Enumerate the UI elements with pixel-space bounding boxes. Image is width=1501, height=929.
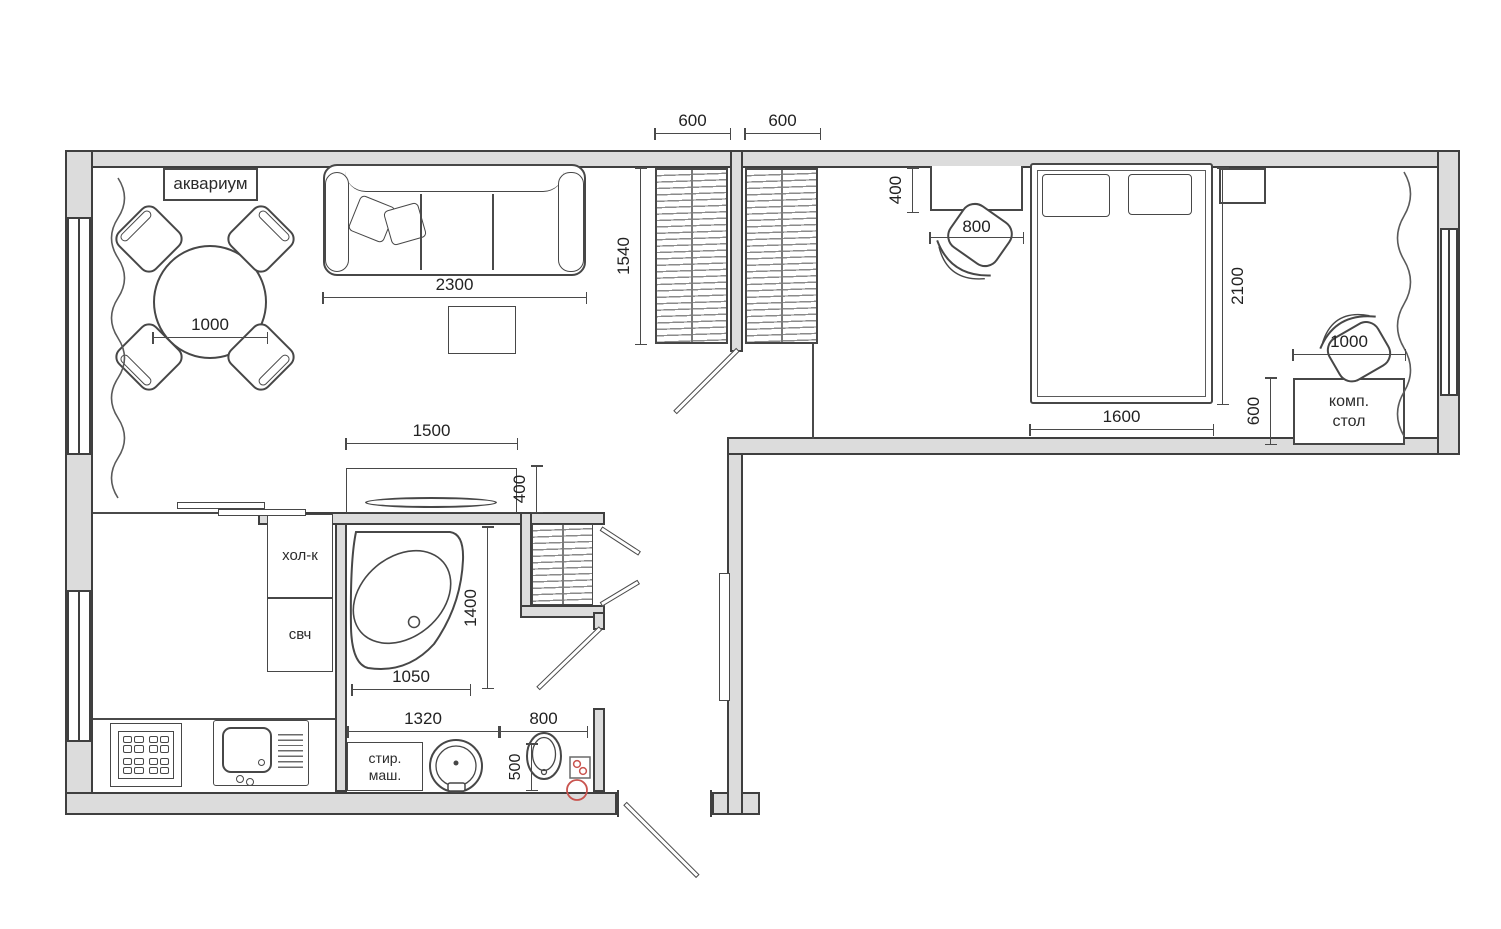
aquarium-label: аквариум xyxy=(173,174,247,194)
wardrobe-rail xyxy=(781,170,784,342)
dim-label: 1320 xyxy=(404,709,442,729)
washing-machine: стир. маш. xyxy=(347,742,423,791)
dim-label: 1400 xyxy=(461,589,481,627)
dim-label: 400 xyxy=(510,475,530,503)
sink-tap-icon xyxy=(236,775,244,783)
hall-mirror xyxy=(719,573,730,701)
dim-label: 2100 xyxy=(1228,267,1248,305)
sofa-cushion-line xyxy=(420,194,422,270)
hall-closet xyxy=(532,524,593,605)
wall-closet-left xyxy=(520,512,532,618)
washer-label-2: маш. xyxy=(369,767,402,783)
pillow xyxy=(1042,174,1110,217)
toilet-icon xyxy=(527,733,561,779)
washer-label-1: стир. xyxy=(369,750,402,766)
chair-back xyxy=(257,353,292,388)
aquarium: аквариум xyxy=(163,168,258,201)
dim-label: 600 xyxy=(1244,397,1264,425)
sink-faucet-dot xyxy=(258,759,265,766)
floor-plan: аквариум комп. ст xyxy=(0,0,1501,929)
coffee-table xyxy=(448,306,516,354)
stove-burners-icon xyxy=(118,731,174,779)
sink-drainer-icon xyxy=(278,730,303,772)
tv-console xyxy=(346,468,517,513)
microwave: свч xyxy=(267,598,333,672)
sliding-panel-2 xyxy=(218,509,306,516)
dim-label: 600 xyxy=(768,111,796,131)
washing-machine-label: стир. маш. xyxy=(369,750,402,784)
window-kitchen xyxy=(67,590,91,742)
dim-label: 2300 xyxy=(436,275,474,295)
window-living-room xyxy=(67,217,91,455)
sofa-armrest-right xyxy=(558,172,584,272)
fridge: хол-к xyxy=(267,514,333,598)
wardrobe-right xyxy=(745,168,818,344)
wardrobe-rail xyxy=(691,170,694,342)
sliding-panel-1 xyxy=(177,502,265,509)
dim-label: 500 xyxy=(507,754,525,781)
wall-bath-right-lower xyxy=(593,708,605,792)
dim-label: 800 xyxy=(962,217,990,237)
computer-desk: комп. стол xyxy=(1293,378,1405,445)
fridge-label: хол-к xyxy=(282,547,318,565)
chair-back xyxy=(257,209,292,244)
wardrobe-left xyxy=(655,168,728,344)
computer-desk-label-1: комп. xyxy=(1329,393,1369,410)
fixtures-layer xyxy=(0,0,1501,929)
nightstand xyxy=(1219,168,1266,204)
closet-divider xyxy=(562,525,565,604)
sofa-cushion-line xyxy=(492,194,494,270)
kitchen-sink xyxy=(213,720,309,786)
dim-label: 1600 xyxy=(1103,407,1141,427)
washbasin-icon xyxy=(430,740,482,792)
dim-label: 1500 xyxy=(413,421,451,441)
window-bedroom xyxy=(1440,228,1458,396)
sofa-backrest xyxy=(345,166,564,192)
dim-label: 1000 xyxy=(191,315,229,335)
bathroom-door-leaf xyxy=(536,626,602,690)
dim-label: 600 xyxy=(678,111,706,131)
closet-door-top xyxy=(600,526,641,555)
bed xyxy=(1030,163,1213,404)
wall-top xyxy=(65,150,1460,168)
wall-living-bedroom-divider xyxy=(730,150,743,352)
sink-bowl-icon xyxy=(222,727,272,773)
dim-label: 800 xyxy=(529,709,557,729)
sink-tap-icon xyxy=(246,778,254,786)
chair-back xyxy=(119,209,154,244)
door-leaf-bedroom xyxy=(673,348,739,414)
dim-label: 400 xyxy=(886,176,906,204)
pillow xyxy=(1128,174,1192,215)
dim-label: 1540 xyxy=(614,237,634,275)
sofa xyxy=(323,164,586,276)
closet-door-bottom xyxy=(600,580,640,607)
stove xyxy=(110,723,182,787)
tv-icon xyxy=(365,497,497,508)
chair-back xyxy=(119,353,154,388)
computer-desk-label-2: стол xyxy=(1332,413,1365,430)
sofa-armrest-left xyxy=(325,172,349,272)
wall-bottom-left xyxy=(65,792,617,815)
wall-kitchen-bath xyxy=(335,512,347,792)
bedroom-desk xyxy=(930,166,1023,211)
dim-label: 1000 xyxy=(1330,332,1368,352)
dressing-zone-line xyxy=(812,344,814,439)
dim-label: 1050 xyxy=(392,667,430,687)
microwave-label: свч xyxy=(289,626,312,644)
bathtub-icon xyxy=(335,532,469,669)
computer-desk-label: комп. стол xyxy=(1329,392,1369,430)
water-riser-icon xyxy=(570,757,590,778)
